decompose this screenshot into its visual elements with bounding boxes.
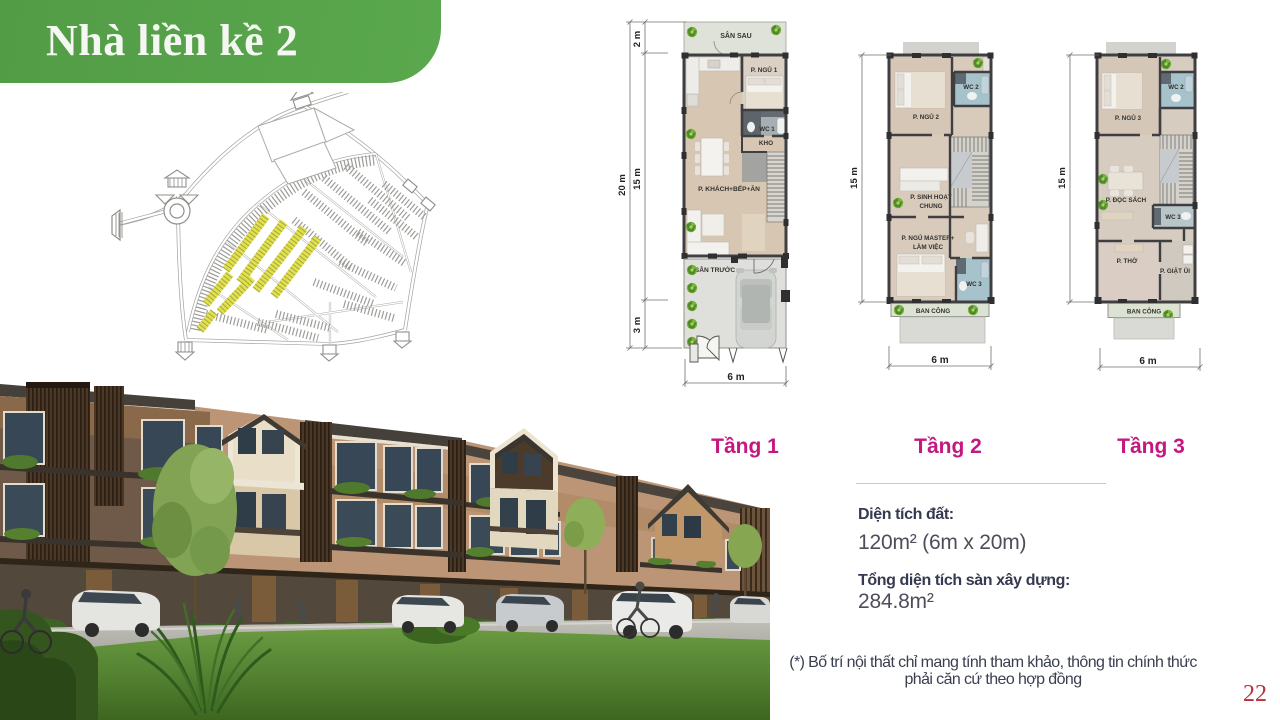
svg-text:6 m: 6 m [1139, 356, 1156, 367]
svg-text:WC 1: WC 1 [759, 126, 775, 133]
svg-text:6 m: 6 m [931, 355, 948, 366]
svg-text:WC 2: WC 2 [963, 84, 979, 91]
svg-text:20 m: 20 m [617, 174, 628, 196]
svg-text:BAN CÔNG: BAN CÔNG [916, 306, 950, 315]
svg-text:2 m: 2 m [632, 31, 643, 47]
svg-text:15 m: 15 m [632, 168, 643, 190]
svg-text:KHO: KHO [759, 140, 773, 147]
svg-text:WC 3: WC 3 [1165, 214, 1181, 221]
svg-text:3 m: 3 m [632, 317, 643, 333]
svg-text:15 m: 15 m [849, 167, 860, 189]
svg-text:P. NGỦ 3: P. NGỦ 3 [1115, 113, 1142, 122]
svg-text:15 m: 15 m [1057, 167, 1068, 189]
svg-text:P. GIẶT ỦI: P. GIẶT ỦI [1160, 266, 1190, 275]
svg-text:P. NGỦ 1: P. NGỦ 1 [751, 65, 778, 74]
svg-text:CHUNG: CHUNG [919, 203, 942, 210]
svg-text:BAN CÔNG: BAN CÔNG [1127, 307, 1161, 316]
svg-text:P. NGỦ 2: P. NGỦ 2 [913, 112, 940, 121]
svg-text:LÀM VIỆC: LÀM VIỆC [913, 242, 944, 251]
svg-text:P. THỜ: P. THỜ [1117, 256, 1138, 265]
svg-text:P. NGỦ MASTER+: P. NGỦ MASTER+ [902, 233, 955, 242]
svg-text:SÂN SAU: SÂN SAU [720, 31, 752, 40]
svg-text:P. ĐỌC SÁCH: P. ĐỌC SÁCH [1106, 195, 1147, 204]
svg-text:SÂN TRƯỚC: SÂN TRƯỚC [695, 265, 736, 274]
svg-text:WC 3: WC 3 [966, 281, 982, 288]
svg-text:WC 2: WC 2 [1168, 84, 1184, 91]
svg-text:P. SINH HOẠT: P. SINH HOẠT [910, 194, 952, 201]
